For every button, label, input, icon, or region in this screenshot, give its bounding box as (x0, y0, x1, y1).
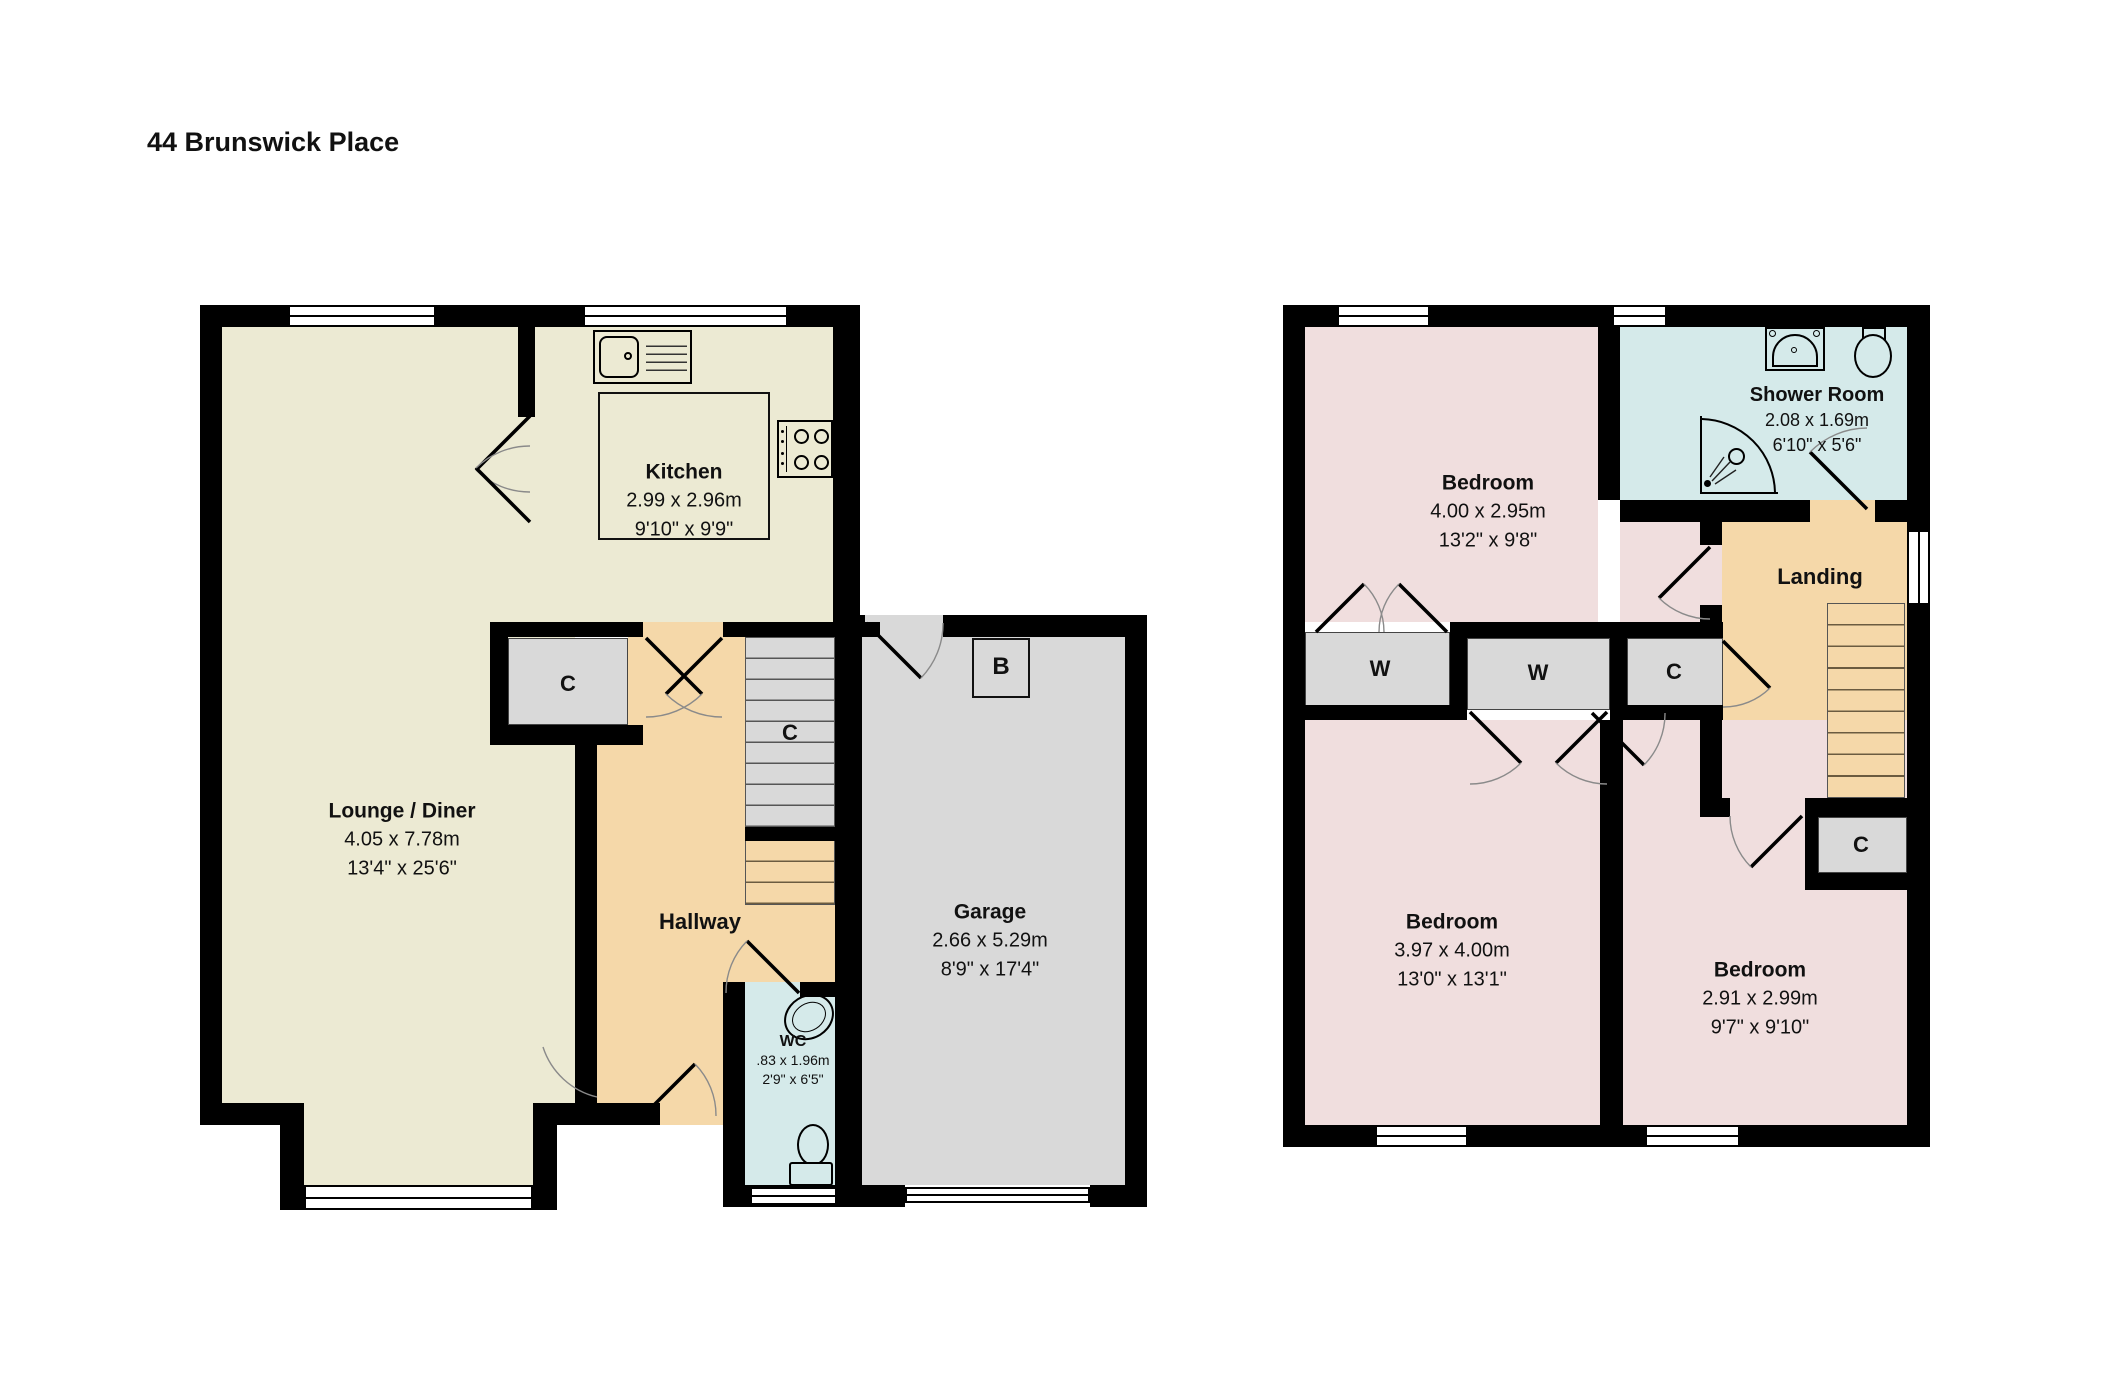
wall (833, 305, 860, 637)
hob-dot (781, 462, 784, 465)
doorway-bedroom-front (1700, 545, 1722, 605)
room-label-hallway: Hallway (659, 909, 741, 935)
window-landing (1907, 530, 1930, 605)
wall (518, 327, 535, 417)
room-name: Bedroom (1430, 469, 1546, 498)
stairs-cupboard-label: C (782, 720, 798, 746)
toilet-icon (1854, 334, 1892, 378)
wall (835, 637, 862, 1207)
hob-dot (781, 430, 784, 433)
room-label-bedroom-front: Bedroom 4.00 x 2.95m 13'2" x 9'8" (1430, 469, 1546, 556)
burner-icon (794, 455, 809, 470)
room-dim-metric: 4.00 x 2.95m (1430, 498, 1546, 527)
cupboard-label: C (1853, 832, 1869, 858)
window-wc (750, 1187, 837, 1205)
wall (1620, 500, 1810, 522)
burner-icon (814, 429, 829, 444)
room-name: Shower Room (1750, 382, 1884, 408)
doorway-kitchen-hall (643, 622, 723, 637)
room-dim-imperial: 13'2" x 9'8" (1430, 527, 1546, 556)
room-name: WC (756, 1033, 829, 1051)
room-dim-imperial: 9'10" x 9'9" (626, 516, 742, 545)
wall (1305, 705, 1467, 720)
shower-head-icon (1728, 448, 1745, 465)
room-dim-imperial: 6'10" x 5'6" (1750, 433, 1884, 458)
window (1612, 305, 1667, 327)
wall (1700, 605, 1722, 622)
stairs-first-floor (1827, 603, 1905, 798)
room-label-bedroom-right: Bedroom 2.91 x 2.99m 9'7" x 9'10" (1702, 956, 1818, 1043)
window (1375, 1125, 1468, 1147)
window (583, 305, 788, 327)
window (1337, 305, 1430, 327)
room-dim-imperial: 13'4" x 25'6" (329, 855, 476, 884)
doorway-bedroom-right (1730, 798, 1805, 817)
wall (1090, 1185, 1147, 1207)
cupboard-label: C (1666, 659, 1682, 685)
wall (280, 1103, 304, 1210)
wall (1700, 798, 1730, 817)
wall (557, 1103, 660, 1125)
room-label-bedroom-left: Bedroom 3.97 x 4.00m 13'0" x 13'1" (1394, 908, 1510, 995)
room-label-shower: Shower Room 2.08 x 1.69m 6'10" x 5'6" (1750, 382, 1884, 458)
room-dim-metric: 4.05 x 7.78m (329, 826, 476, 855)
basin-drain-icon (1791, 347, 1797, 353)
room-label-kitchen: Kitchen 2.99 x 2.96m 9'10" x 9'9" (626, 458, 742, 545)
room-dim-metric: 2.66 x 5.29m (932, 927, 1048, 956)
basin-tap-icon (1813, 330, 1820, 337)
sink-tap-icon (624, 352, 632, 360)
window (1645, 1125, 1740, 1147)
drainer-icon (646, 339, 687, 377)
room-dim-imperial: 8'9" x 17'4" (932, 956, 1048, 985)
sink-bowl-icon (599, 336, 639, 378)
room-name: Bedroom (1702, 956, 1818, 985)
room-hallway-wc-lobby (745, 905, 835, 982)
wall (1875, 500, 1910, 522)
doorway-wc (745, 982, 800, 997)
toilet-icon (797, 1124, 829, 1166)
wardrobe-label: W (1528, 660, 1549, 686)
room-lounge-bay (304, 1103, 533, 1187)
hob-controls-icon (786, 426, 787, 472)
window-bay (304, 1185, 533, 1210)
page-title: 44 Brunswick Place (147, 127, 399, 158)
room-name: Garage (932, 898, 1048, 927)
wall (1283, 305, 1305, 1147)
wall (1125, 615, 1147, 1207)
burner-icon (814, 455, 829, 470)
hob-dot (781, 452, 784, 455)
burner-icon (794, 429, 809, 444)
room-bedroom-front-annex (1620, 522, 1700, 622)
room-label-wc: WC .83 x 1.96m 2'9" x 6'5" (756, 1033, 829, 1089)
room-hallway-top (628, 637, 745, 745)
wc-basin-inner (786, 996, 831, 1039)
room-dim-imperial: 13'0" x 13'1" (1394, 966, 1510, 995)
wall (1805, 817, 1818, 875)
wall (490, 725, 643, 745)
room-dim-metric: 3.97 x 4.00m (1394, 937, 1510, 966)
cupboard-label: C (560, 671, 576, 697)
room-dim-imperial: 2'9" x 6'5" (756, 1070, 829, 1089)
hob-dot (781, 440, 784, 443)
window (288, 305, 436, 327)
room-dim-metric: .83 x 1.96m (756, 1051, 829, 1070)
room-name: Bedroom (1394, 908, 1510, 937)
basin-tap-icon (1769, 330, 1776, 337)
room-dim-imperial: 9'7" x 9'10" (1702, 1014, 1818, 1043)
wall (533, 1103, 557, 1210)
room-label-garage: Garage 2.66 x 5.29m 8'9" x 17'4" (932, 898, 1048, 985)
garage-door (905, 1187, 1090, 1203)
wall (723, 982, 745, 1207)
wall (943, 615, 1147, 637)
wall (1805, 873, 1907, 890)
wall (1598, 327, 1620, 500)
room-label-landing: Landing (1777, 564, 1863, 590)
wall (200, 305, 222, 1125)
room-label-lounge: Lounge / Diner 4.05 x 7.78m 13'4" x 25'6… (329, 797, 476, 884)
shower-drain-dot (1704, 480, 1711, 487)
wardrobe-label: W (1370, 656, 1391, 682)
room-name: Kitchen (626, 458, 742, 487)
wall (1467, 622, 1723, 638)
room-dim-metric: 2.08 x 1.69m (1750, 408, 1884, 433)
wall (848, 615, 865, 637)
wall (1907, 305, 1930, 1147)
boiler-label: B (992, 653, 1009, 681)
room-name: Lounge / Diner (329, 797, 476, 826)
wall (1700, 720, 1722, 798)
wall (1805, 798, 1907, 817)
wall (575, 745, 597, 1103)
wall (745, 827, 835, 841)
doorway-shower (1810, 500, 1875, 522)
floorplan: 44 Brunswick Place (0, 0, 2115, 1395)
wall (1700, 522, 1722, 545)
stairs-lower-flight (745, 840, 835, 905)
wall (1600, 720, 1623, 1125)
toilet-cistern-icon (789, 1162, 833, 1186)
wall (1610, 705, 1723, 720)
room-dim-metric: 2.99 x 2.96m (626, 487, 742, 516)
wall (490, 622, 643, 637)
room-dim-metric: 2.91 x 2.99m (1702, 985, 1818, 1014)
